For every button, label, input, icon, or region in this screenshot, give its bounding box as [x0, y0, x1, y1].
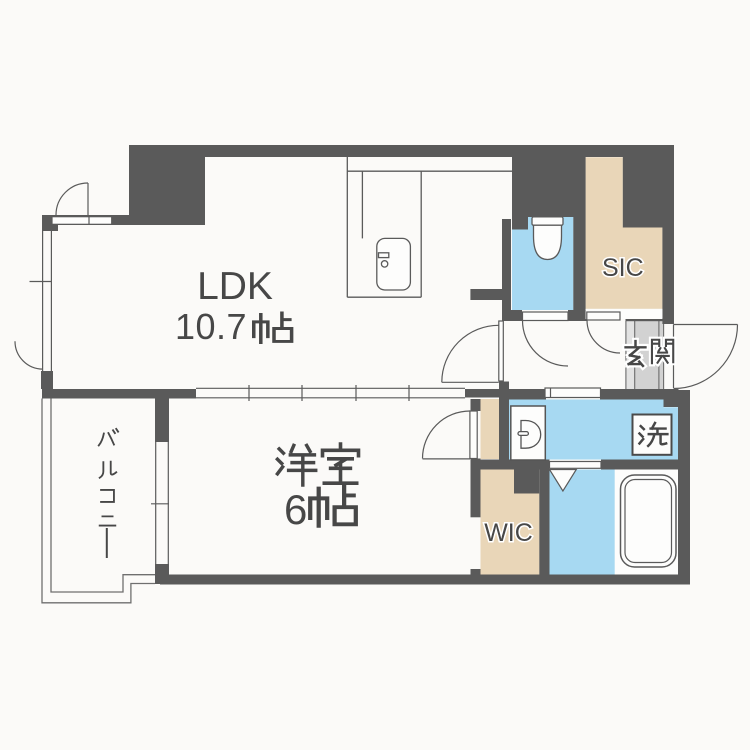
svg-text:SIC: SIC [602, 254, 644, 282]
svg-text:WIC: WIC [484, 519, 533, 547]
svg-text:10.7: 10.7 [175, 306, 247, 347]
svg-text:6: 6 [284, 486, 307, 533]
svg-text:LDK: LDK [197, 265, 273, 308]
